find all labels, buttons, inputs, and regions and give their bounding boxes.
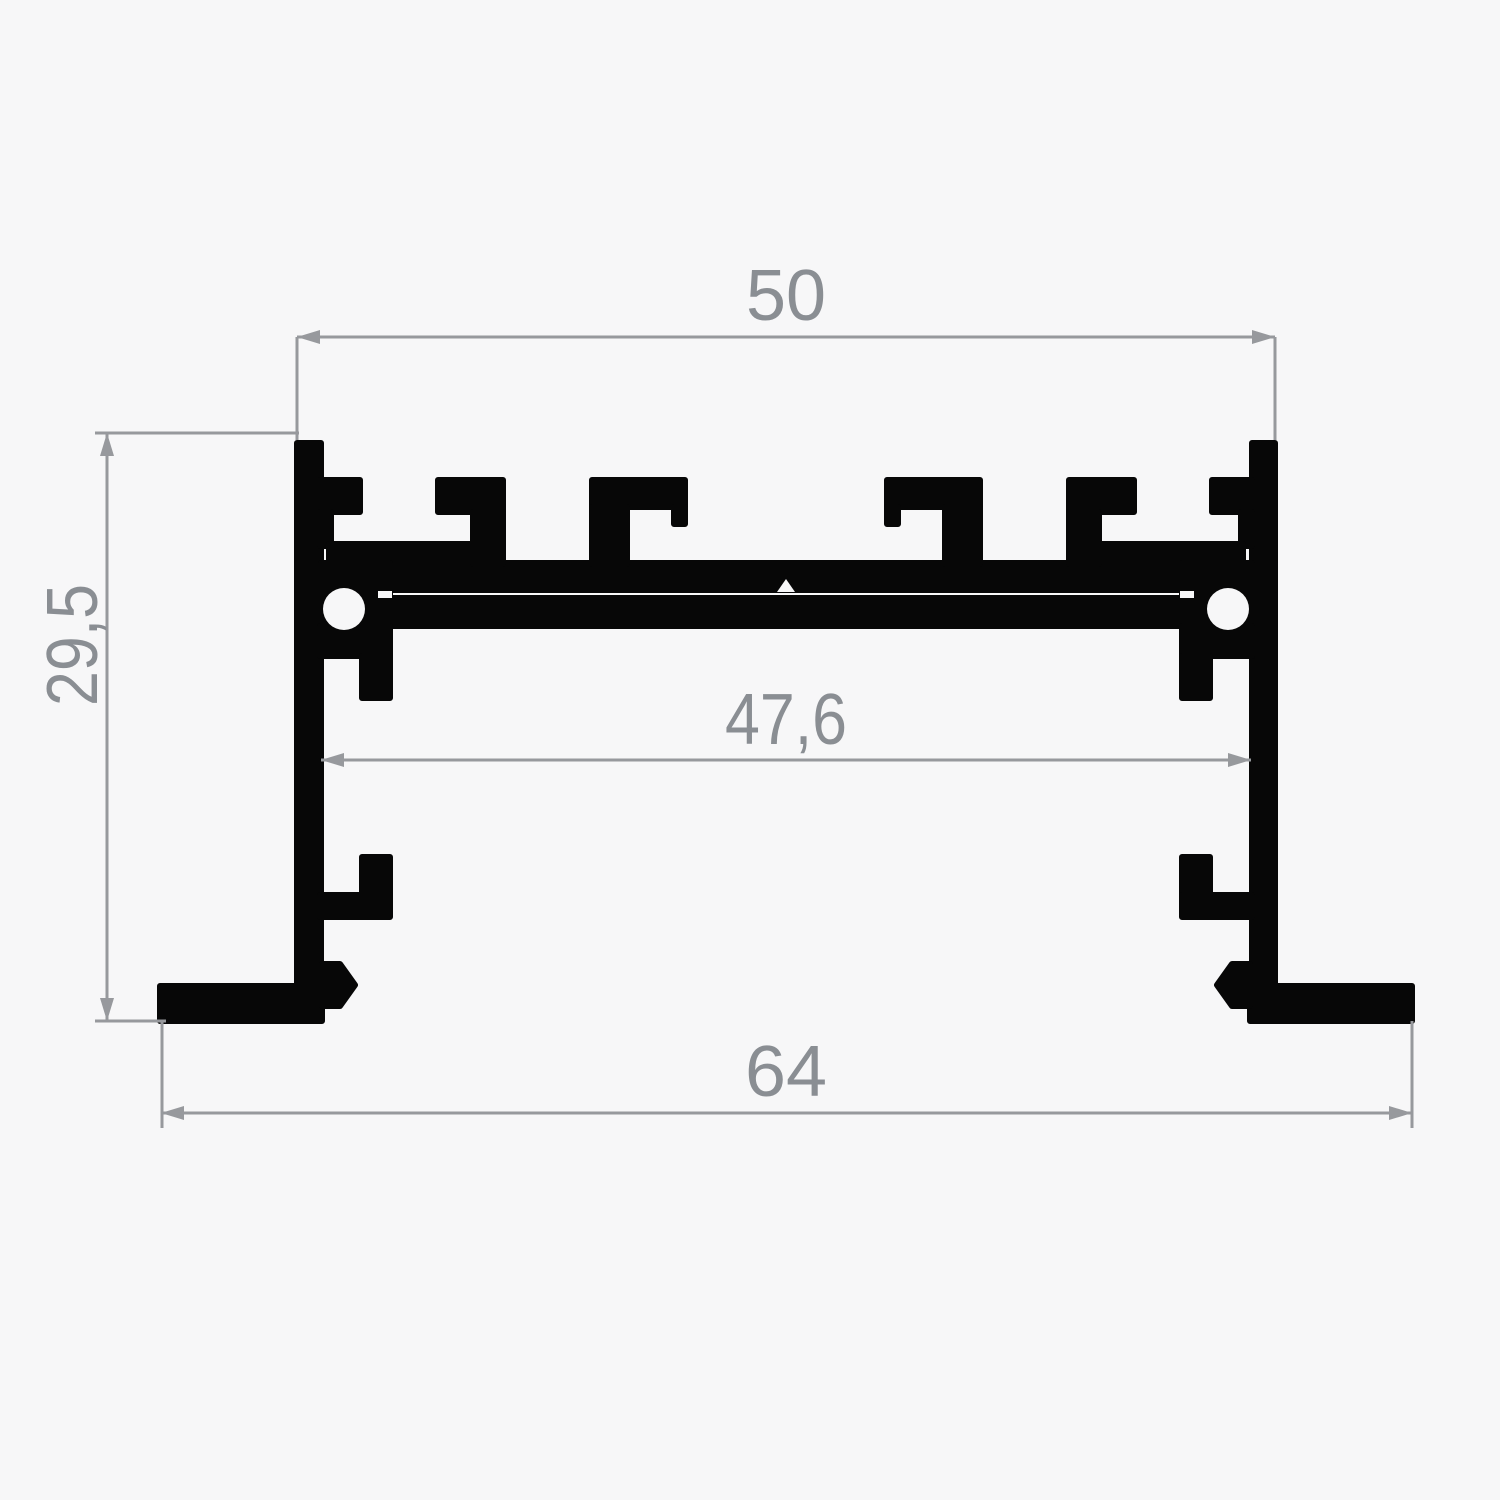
dimension-top-width: 50 xyxy=(297,256,1275,440)
drawing-canvas: 50 47,6 29,5 64 xyxy=(0,0,1500,1500)
dimension-inner-width: 47,6 xyxy=(321,680,1251,767)
right-flange xyxy=(1250,986,1412,1021)
right-screw-hole xyxy=(1207,588,1249,630)
left-keyhole-slot xyxy=(378,591,392,598)
upper-hook-right xyxy=(1182,626,1252,698)
left-flange xyxy=(160,986,322,1021)
right-wall xyxy=(1252,443,1275,988)
dimension-height: 29,5 xyxy=(33,433,299,1021)
arrowhead-down-icon xyxy=(100,998,114,1021)
lower-hook-left xyxy=(320,857,390,917)
dimension-label-inner-width: 47,6 xyxy=(725,680,847,760)
right-barb xyxy=(1217,964,1250,1006)
arrowhead-right-icon xyxy=(1389,1106,1412,1120)
profile-technical-drawing: 50 47,6 29,5 64 xyxy=(0,0,1500,1500)
arrowhead-left-icon xyxy=(321,753,344,767)
arrowhead-up-icon xyxy=(100,433,114,456)
dimension-label-bottom-width: 64 xyxy=(745,1032,827,1112)
arrowhead-right-icon xyxy=(1228,753,1251,767)
arrowhead-right-icon xyxy=(1252,330,1275,344)
dimension-label-height: 29,5 xyxy=(33,584,113,706)
inner-shelf xyxy=(375,598,1197,626)
left-barb xyxy=(322,964,355,1006)
dimension-label-top-width: 50 xyxy=(746,256,826,336)
top-fins-right xyxy=(887,480,1252,564)
arrowhead-left-icon xyxy=(297,330,320,344)
dimension-bottom-width: 64 xyxy=(161,1021,1412,1128)
left-screw-hole xyxy=(323,588,365,630)
top-fins-left xyxy=(320,480,685,564)
right-keyhole-slot xyxy=(1180,591,1194,598)
arrowhead-left-icon xyxy=(161,1106,184,1120)
lower-hook-right xyxy=(1182,857,1252,917)
upper-hook-left xyxy=(320,626,390,698)
